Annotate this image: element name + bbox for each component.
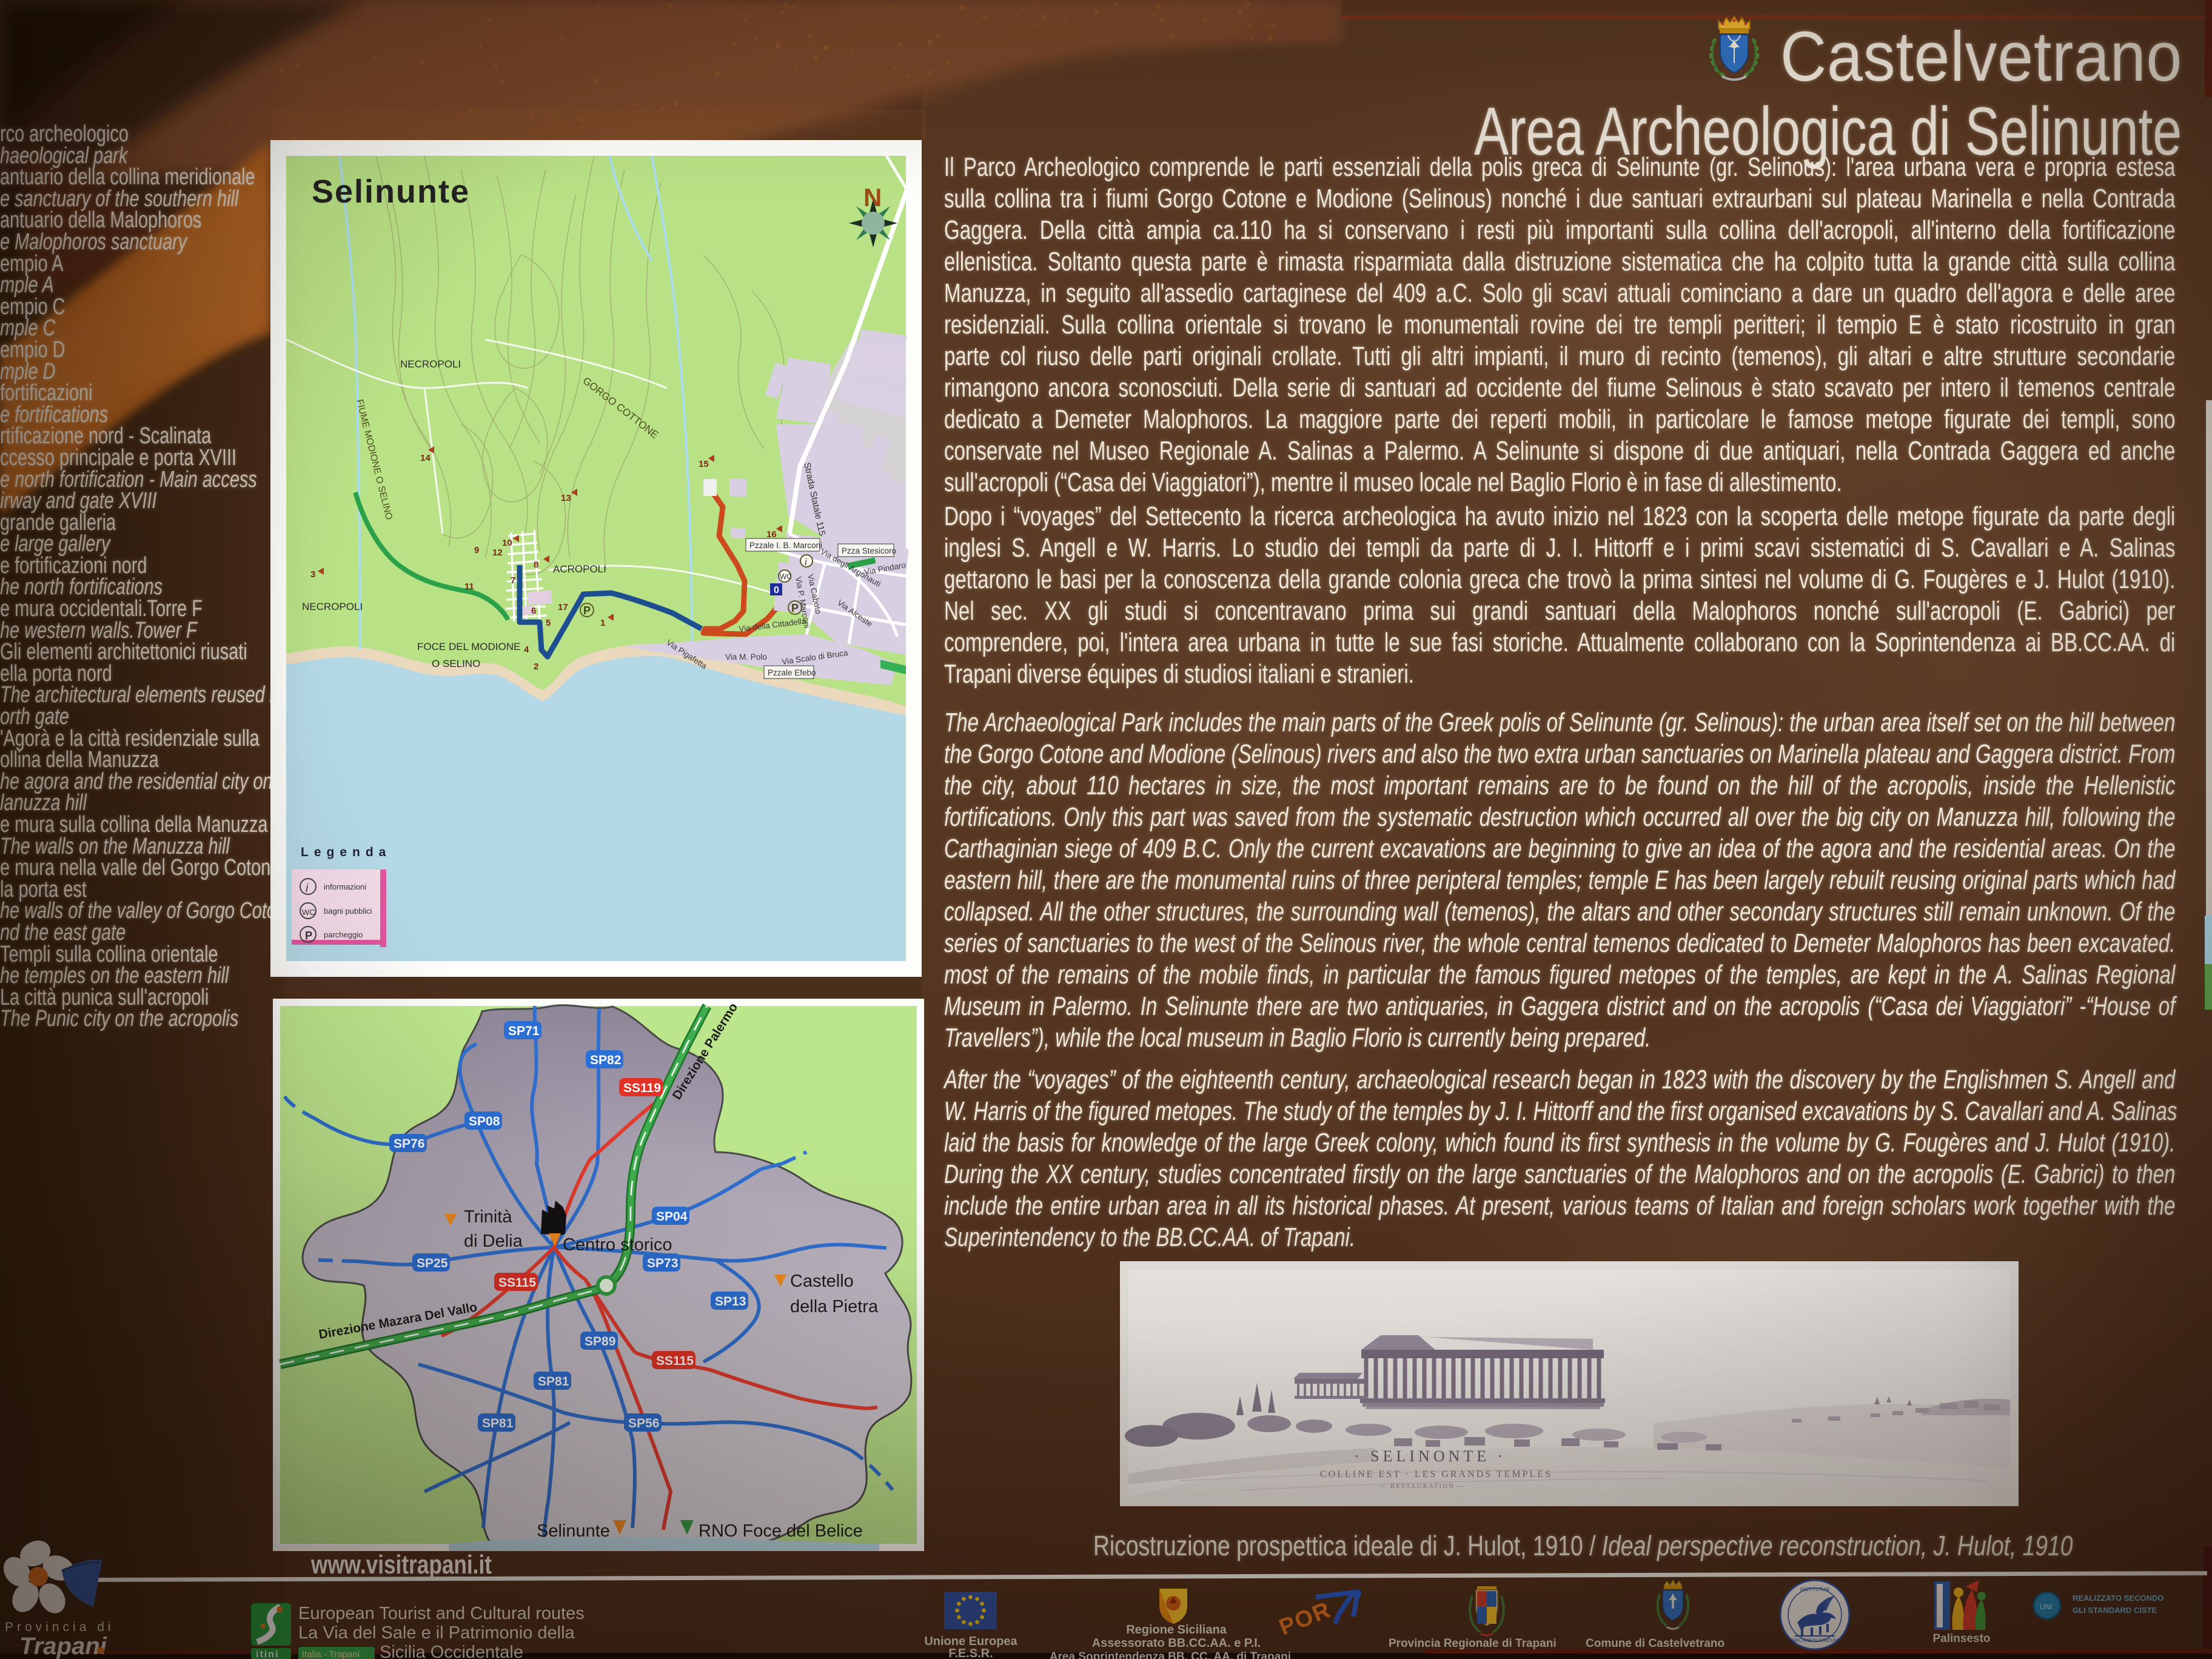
svg-text:Legenda: Legenda — [301, 845, 391, 859]
svg-text:P: P — [583, 605, 591, 617]
svg-text:Italia - Trapani: Italia - Trapani — [302, 1649, 360, 1659]
svg-text:REALIZZATO SECONDO: REALIZZATO SECONDO — [2073, 1594, 2163, 1603]
svg-text:WC: WC — [780, 572, 792, 581]
svg-text:11: 11 — [464, 581, 474, 592]
svg-text:FOCE DEL MODIONE: FOCE DEL MODIONE — [417, 641, 520, 652]
svg-text:European Tourist and Cultural: European Tourist and Cultural routes — [298, 1604, 585, 1623]
svg-text:14: 14 — [420, 453, 431, 463]
svg-text:Selinunte: Selinunte — [312, 173, 470, 210]
svg-text:parcheggio: parcheggio — [324, 930, 363, 939]
svg-text:NECROPOLI: NECROPOLI — [400, 358, 461, 370]
svg-text:bagni pubblici: bagni pubblici — [324, 907, 372, 916]
svg-text:· SELINONTE ·: · SELINONTE · — [1354, 1447, 1506, 1465]
svg-text:Via M. Polo: Via M. Polo — [725, 652, 767, 662]
svg-text:Trinità: Trinità — [464, 1207, 512, 1227]
svg-text:ARCHAEOLOGICUM: ARCHAEOLOGICUM — [1792, 1638, 1838, 1643]
svg-text:Unione Europea: Unione Europea — [924, 1635, 1017, 1648]
svg-text:SP71: SP71 — [508, 1024, 540, 1038]
svg-text:12: 12 — [492, 548, 503, 558]
svg-text:7: 7 — [511, 575, 515, 586]
svg-text:10: 10 — [502, 538, 512, 548]
svg-text:SP04: SP04 — [656, 1210, 688, 1224]
svg-text:i: i — [805, 557, 807, 568]
svg-text:9: 9 — [474, 545, 479, 555]
svg-text:1: 1 — [600, 618, 605, 628]
svg-text:SP08: SP08 — [469, 1114, 500, 1128]
svg-text:Assessorato BB.CC.AA. e P.I.: Assessorato BB.CC.AA. e P.I. — [1092, 1637, 1261, 1650]
svg-text:Pzzale Efebo: Pzzale Efebo — [768, 668, 816, 677]
svg-text:itini: itini — [256, 1649, 279, 1659]
svg-text:SS119: SS119 — [623, 1081, 661, 1095]
svg-text:Centro storico: Centro storico — [563, 1235, 672, 1255]
svg-text:Provincia di: Provincia di — [5, 1620, 115, 1634]
svg-text:13: 13 — [561, 493, 571, 503]
svg-text:4: 4 — [524, 645, 529, 655]
svg-text:O SELINO: O SELINO — [432, 658, 480, 669]
svg-text:— RESTAURATION —: — RESTAURATION — — [1379, 1483, 1466, 1490]
svg-text:P: P — [305, 930, 312, 942]
svg-text:5: 5 — [546, 618, 551, 628]
svg-text:6: 6 — [531, 606, 536, 616]
svg-text:SP56: SP56 — [628, 1416, 659, 1430]
svg-text:Castello: Castello — [790, 1272, 854, 1291]
svg-text:GLI STANDARD CISTE: GLI STANDARD CISTE — [2073, 1606, 2157, 1615]
svg-text:ACROPOLI: ACROPOLI — [553, 563, 606, 575]
svg-text:Sicilia Occidentale: Sicilia Occidentale — [380, 1643, 523, 1659]
svg-text:SS115: SS115 — [656, 1354, 694, 1368]
svg-text:Pzzale I. B. Marconi: Pzzale I. B. Marconi — [749, 541, 822, 550]
svg-text:Regione Siciliana: Regione Siciliana — [1126, 1623, 1227, 1637]
svg-text:0: 0 — [774, 585, 779, 595]
svg-text:Selinunte: Selinunte — [537, 1521, 610, 1541]
svg-text:NECROPOLI: NECROPOLI — [302, 601, 363, 612]
svg-text:SP13: SP13 — [715, 1295, 746, 1309]
svg-text:SP82: SP82 — [590, 1053, 621, 1067]
svg-text:di Delia: di Delia — [464, 1232, 523, 1251]
svg-text:Trapani: Trapani — [19, 1633, 107, 1659]
svg-text:SP81: SP81 — [482, 1416, 514, 1430]
svg-text:2: 2 — [534, 662, 538, 672]
svg-text:Pzza Stesicoro: Pzza Stesicoro — [842, 546, 896, 555]
svg-text:8: 8 — [534, 560, 538, 570]
svg-text:UNI: UNI — [2040, 1603, 2053, 1611]
svg-text:SP25: SP25 — [417, 1256, 448, 1270]
svg-text:POR: POR — [1278, 1597, 1335, 1641]
svg-text:3: 3 — [310, 569, 315, 580]
svg-text:SP89: SP89 — [585, 1335, 615, 1349]
svg-text:SP76: SP76 — [394, 1137, 424, 1151]
svg-text:SS115: SS115 — [498, 1276, 536, 1290]
svg-text:informazioni: informazioni — [324, 882, 366, 891]
svg-text:INSTITUTUM: INSTITUTUM — [1800, 1587, 1830, 1592]
svg-text:P: P — [791, 602, 799, 614]
svg-text:SP81: SP81 — [538, 1375, 569, 1389]
svg-text:15: 15 — [699, 459, 709, 469]
svg-text:SP73: SP73 — [647, 1256, 678, 1270]
svg-text:WC: WC — [302, 908, 315, 917]
svg-text:La Via del Sale e il Patrimoni: La Via del Sale e il Patrimonio della — [298, 1623, 575, 1643]
svg-text:COLLINE EST · LES GRANDS TEMPL: COLLINE EST · LES GRANDS TEMPLES — [1320, 1469, 1552, 1480]
svg-text:RNO Foce del Belice: RNO Foce del Belice — [699, 1521, 863, 1541]
svg-text:della Pietra: della Pietra — [790, 1297, 879, 1316]
svg-text:N: N — [863, 183, 882, 212]
svg-text:F.E.S.R.: F.E.S.R. — [948, 1647, 993, 1659]
svg-text:17: 17 — [558, 602, 568, 612]
